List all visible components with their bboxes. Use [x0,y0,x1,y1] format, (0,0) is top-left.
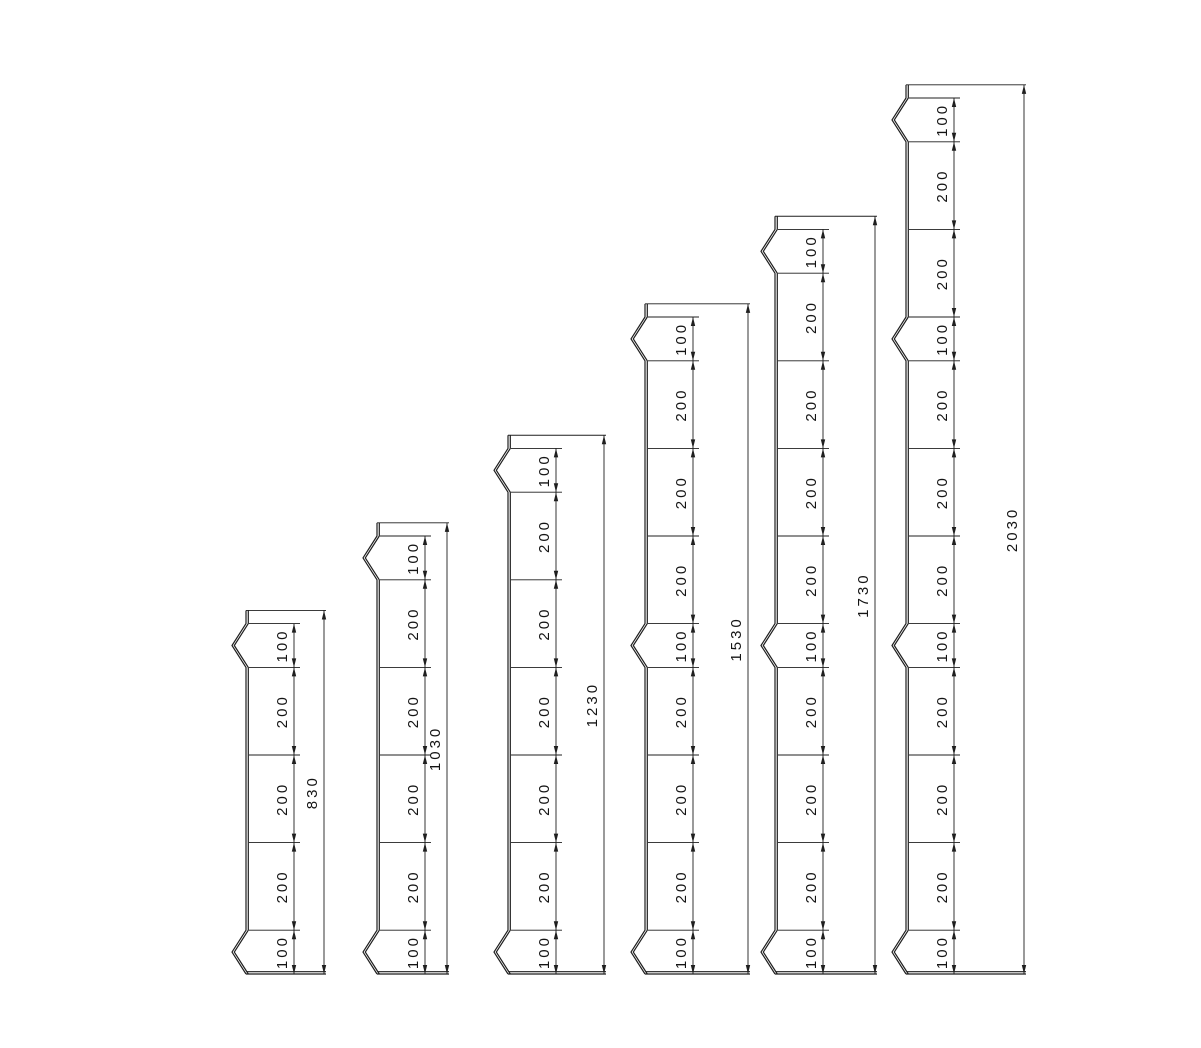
post-2030-group: 1002002001002002002001002002002001002030 [892,85,1026,974]
chain-dimension-label: 200 [274,869,291,903]
dimension-arrow-up [821,361,825,370]
dimension-arrow-down [873,965,877,974]
dimension-arrow-up [691,667,695,676]
dimension-arrow-down [423,571,427,580]
dimension-arrow-down [691,834,695,843]
chain-dimension-label: 200 [536,782,553,816]
chain-dimension-label: 200 [934,694,951,728]
chain-dimension-label: 100 [536,453,553,487]
chain-dimension-label: 100 [536,935,553,969]
post-1730-group: 1002002002002001002002002001001730 [761,216,877,974]
dimension-arrow-up [292,624,296,633]
dimension-arrow-down [292,921,296,930]
dimension-arrow-down [691,439,695,448]
post-profile-outer [494,435,508,974]
chain-dimension-label: 200 [934,782,951,816]
dimension-arrow-down [292,658,296,667]
chain-dimension-label: 200 [405,607,422,641]
overall-dimension-label: 1230 [584,682,601,727]
chain-dimension-label: 200 [673,782,690,816]
dimension-arrow-down [554,921,558,930]
dimension-arrow-up [952,536,956,545]
dimension-arrow-down [423,965,427,974]
chain-dimension-label: 100 [934,628,951,662]
chain-dimension-label: 200 [934,475,951,509]
chain-dimension-label: 200 [673,694,690,728]
overall-dimension-label: 830 [304,775,321,809]
chain-dimension-label: 100 [934,103,951,137]
chain-dimension-label: 100 [934,322,951,356]
chain-dimension-label: 100 [405,935,422,969]
chain-dimension-label: 200 [934,169,951,203]
dimension-arrow-up [691,755,695,764]
chain-dimension-label: 200 [536,869,553,903]
technical-drawing: 1002002002001008301002002002002001001030… [0,0,1201,1048]
overall-dimension-label: 1730 [855,572,872,617]
posts-elevation-drawing: 1002002002001008301002002002002001001030… [0,0,1201,1048]
dimension-arrow-up [821,624,825,633]
chain-dimension-label: 100 [673,628,690,662]
dimension-arrow-down [952,133,956,142]
dimension-arrow-up [602,435,606,444]
dimension-arrow-up [821,843,825,852]
dimension-arrow-down [292,746,296,755]
dimension-arrow-up [554,667,558,676]
dimension-arrow-down [691,615,695,624]
overall-dimension-label: 2030 [1004,507,1021,552]
chain-dimension-label: 200 [536,694,553,728]
dimension-arrow-down [554,571,558,580]
dimension-arrow-up [821,755,825,764]
dimension-arrow-up [952,667,956,676]
chain-dimension-label: 200 [673,563,690,597]
dimension-arrow-down [691,352,695,361]
dimension-arrow-up [952,930,956,939]
dimension-arrow-up [445,523,449,532]
dimension-arrow-up [423,667,427,676]
dimension-arrow-up [821,273,825,282]
chain-dimension-label: 200 [934,388,951,422]
chain-dimension-label: 200 [803,300,820,334]
dimension-arrow-down [554,965,558,974]
dimension-arrow-up [691,317,695,326]
dimension-arrow-up [873,216,877,225]
dimension-arrow-up [423,536,427,545]
chain-dimension-label: 200 [803,388,820,422]
dimension-arrow-down [952,834,956,843]
dimension-arrow-down [691,746,695,755]
chain-dimension-label: 100 [803,234,820,268]
dimension-arrow-down [423,834,427,843]
post-830-group: 100200200200100830 [232,610,326,974]
dimension-arrow-up [952,361,956,370]
overall-dimension-label: 1530 [728,616,745,661]
chain-dimension-label: 200 [934,869,951,903]
dimension-arrow-up [691,448,695,457]
post-1530-group: 1002002002001002002002001001530 [631,304,750,974]
dimension-arrow-up [554,755,558,764]
dimension-arrow-down [821,352,825,361]
dimension-arrow-down [292,965,296,974]
chain-dimension-label: 200 [536,519,553,553]
dimension-arrow-down [821,615,825,624]
chain-dimension-label: 100 [934,935,951,969]
dimension-arrow-up [952,755,956,764]
dimension-arrow-down [445,965,449,974]
dimension-arrow-up [554,492,558,501]
dimension-arrow-up [292,667,296,676]
dimension-arrow-up [554,843,558,852]
post-profile-outer [761,216,775,974]
chain-dimension-label: 100 [673,935,690,969]
dimension-arrow-up [952,843,956,852]
dimension-arrow-up [322,610,326,619]
chain-dimension-label: 200 [803,475,820,509]
chain-dimension-label: 200 [274,782,291,816]
overall-dimension-label: 1030 [427,726,444,771]
dimension-arrow-up [423,930,427,939]
dimension-arrow-down [821,746,825,755]
dimension-arrow-down [691,965,695,974]
chain-dimension-label: 200 [673,475,690,509]
dimension-arrow-up [423,843,427,852]
chain-dimension-label: 200 [934,256,951,290]
dimension-arrow-down [322,965,326,974]
dimension-arrow-down [292,834,296,843]
post-1030-group: 1002002002002001001030 [363,523,449,974]
dimension-arrow-up [691,843,695,852]
dimension-arrow-down [952,921,956,930]
post-profile-outer [363,523,377,974]
dimension-arrow-down [821,527,825,536]
dimension-arrow-down [554,658,558,667]
dimension-arrow-down [554,483,558,492]
dimension-arrow-down [821,921,825,930]
chain-dimension-label: 200 [405,694,422,728]
dimension-arrow-down [554,746,558,755]
chain-dimension-label: 200 [934,563,951,597]
dimension-arrow-down [691,921,695,930]
dimension-arrow-down [952,746,956,755]
dimension-arrow-down [952,615,956,624]
chain-dimension-label: 100 [673,322,690,356]
dimension-arrow-down [691,527,695,536]
dimension-arrow-down [821,658,825,667]
chain-dimension-label: 100 [274,628,291,662]
chain-dimension-label: 200 [405,869,422,903]
chain-dimension-label: 100 [803,935,820,969]
dimension-arrow-up [554,580,558,589]
dimension-arrow-up [554,930,558,939]
dimension-arrow-up [691,930,695,939]
chain-dimension-label: 200 [405,782,422,816]
dimension-arrow-up [821,536,825,545]
chain-dimension-label: 100 [803,628,820,662]
dimension-arrow-down [423,921,427,930]
dimension-arrow-down [952,220,956,229]
dimension-arrow-down [952,658,956,667]
dimension-arrow-up [292,755,296,764]
chain-dimension-label: 200 [673,388,690,422]
dimension-arrow-down [554,834,558,843]
chain-dimension-label: 200 [803,869,820,903]
dimension-arrow-up [691,624,695,633]
dimension-arrow-down [602,965,606,974]
dimension-arrow-down [746,965,750,974]
dimension-arrow-up [423,580,427,589]
dimension-arrow-up [952,448,956,457]
chain-dimension-label: 200 [673,869,690,903]
dimension-arrow-down [1022,965,1026,974]
chain-dimension-label: 200 [803,782,820,816]
dimension-arrow-up [746,304,750,313]
dimension-arrow-up [1022,85,1026,94]
dimension-arrow-up [821,229,825,238]
chain-dimension-label: 200 [803,694,820,728]
dimension-arrow-down [952,527,956,536]
dimension-arrow-up [952,142,956,151]
dimension-arrow-down [821,965,825,974]
dimension-arrow-down [821,439,825,448]
dimension-arrow-down [691,658,695,667]
dimension-arrow-up [292,843,296,852]
dimension-arrow-up [952,317,956,326]
post-1230-group: 1002002002002002001001230 [494,435,606,974]
dimension-arrow-up [292,930,296,939]
dimension-arrow-up [821,930,825,939]
dimension-arrow-up [691,536,695,545]
post-profile-outer [232,611,246,975]
dimension-arrow-up [821,667,825,676]
chain-dimension-label: 200 [803,563,820,597]
post-profile-outer [892,85,906,974]
dimension-arrow-down [423,658,427,667]
dimension-arrow-down [952,352,956,361]
dimension-arrow-down [952,965,956,974]
dimension-arrow-up [952,229,956,238]
dimension-arrow-down [952,308,956,317]
dimension-arrow-down [821,834,825,843]
chain-dimension-label: 100 [405,541,422,575]
dimension-arrow-up [952,624,956,633]
chain-dimension-label: 100 [274,935,291,969]
dimension-arrow-up [691,361,695,370]
dimension-arrow-up [821,448,825,457]
chain-dimension-label: 200 [536,607,553,641]
dimension-arrow-up [952,98,956,107]
dimension-arrow-up [554,448,558,457]
chain-dimension-label: 200 [274,694,291,728]
dimension-arrow-down [952,439,956,448]
dimension-arrow-down [821,264,825,273]
